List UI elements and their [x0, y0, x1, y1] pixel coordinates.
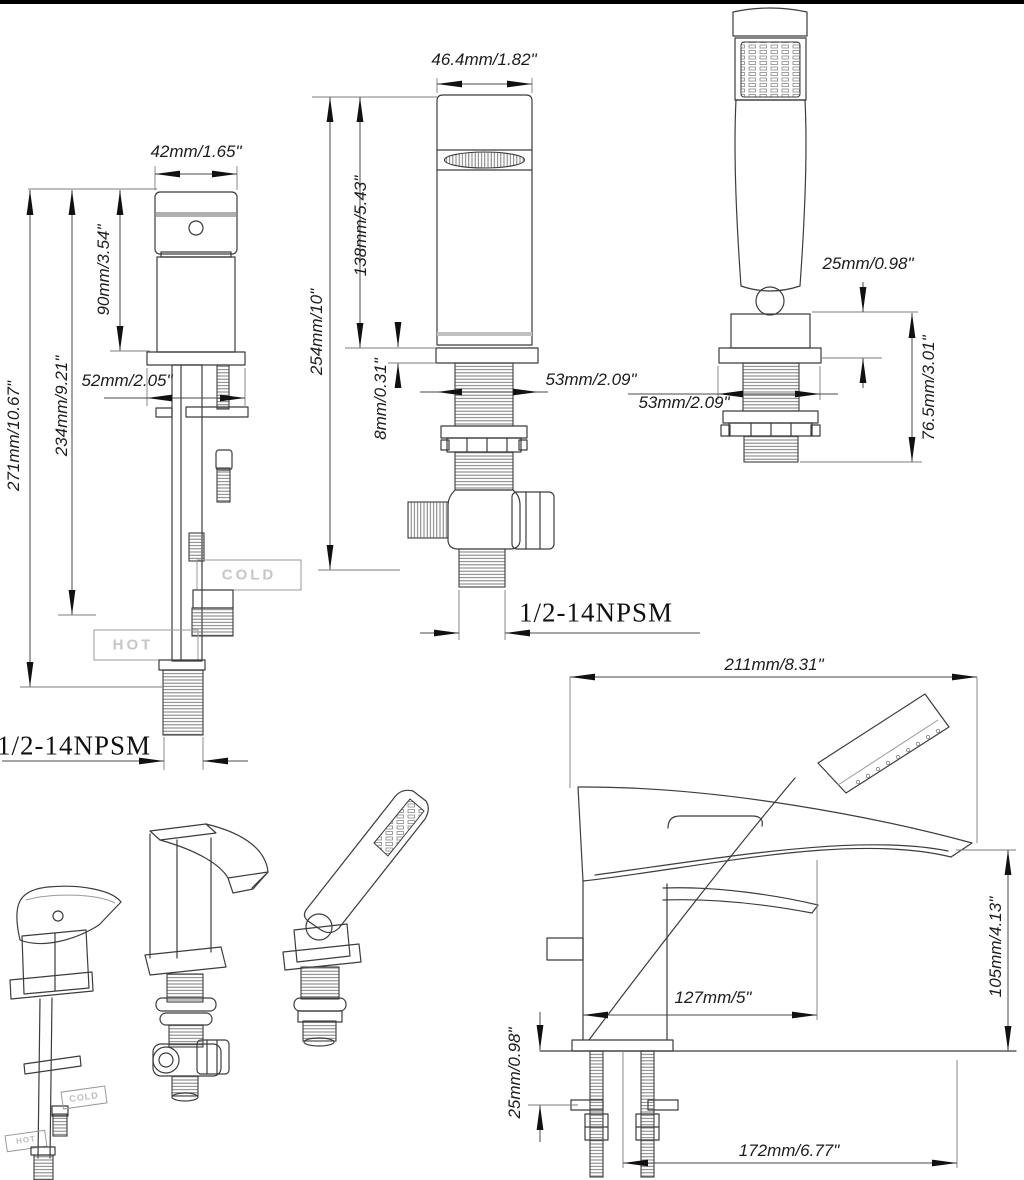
dim-valve-total-height: 271mm/10.67" — [4, 381, 24, 491]
hot-inlet-tag: HOT — [113, 637, 154, 654]
valve-thread-spec: 1/2-14NPSM — [0, 731, 151, 762]
technical-drawing-page: 42mm/1.65" 90mm/3.54" 52mm/2.05" 234mm/9… — [0, 0, 1024, 1180]
dim-spout-flange-thickness: 8mm/0.31" — [371, 358, 391, 440]
dim-assembled-handle-center: 127mm/5" — [675, 988, 752, 1008]
dim-handshower-flange-width: 53mm/2.09" — [638, 393, 729, 413]
dim-handshower-below-deck: 76.5mm/3.01" — [919, 335, 939, 440]
dim-valve-handle-width: 42mm/1.65" — [150, 142, 241, 162]
dim-valve-handle-height: 90mm/3.54" — [94, 224, 114, 315]
cold-inlet-tag: COLD — [222, 567, 277, 584]
dim-spout-body-height: 138mm/5.43" — [351, 176, 371, 277]
spout-thread-spec: 1/2-14NPSM — [519, 598, 673, 629]
dim-assembled-spout-reach: 211mm/8.31" — [724, 655, 823, 675]
dim-spout-flange-width: 53mm/2.09" — [545, 370, 636, 390]
assembled-iso-view — [5, 790, 428, 1180]
dim-handshower-ball-offset: 25mm/0.98" — [822, 254, 913, 274]
assembled-side-view — [540, 694, 1016, 1177]
drawing-linework — [0, 0, 1024, 1180]
dim-spout-top-width: 46.4mm/1.82" — [431, 50, 536, 70]
dim-valve-escutcheon-width: 52mm/2.05" — [81, 371, 172, 391]
dim-spout-total-height: 254mm/10" — [307, 289, 327, 375]
valve-side-view — [94, 192, 301, 735]
dim-assembled-spout-height: 105mm/4.13" — [986, 897, 1006, 998]
dim-assembled-outlet-offset: 172mm/6.77" — [739, 1141, 840, 1161]
spout-front-view — [408, 95, 554, 587]
dim-valve-body-height: 234mm/9.21" — [52, 356, 72, 457]
scan-top-border — [0, 0, 1024, 4]
dim-assembled-deck-thickness: 25mm/0.98" — [505, 1027, 525, 1118]
